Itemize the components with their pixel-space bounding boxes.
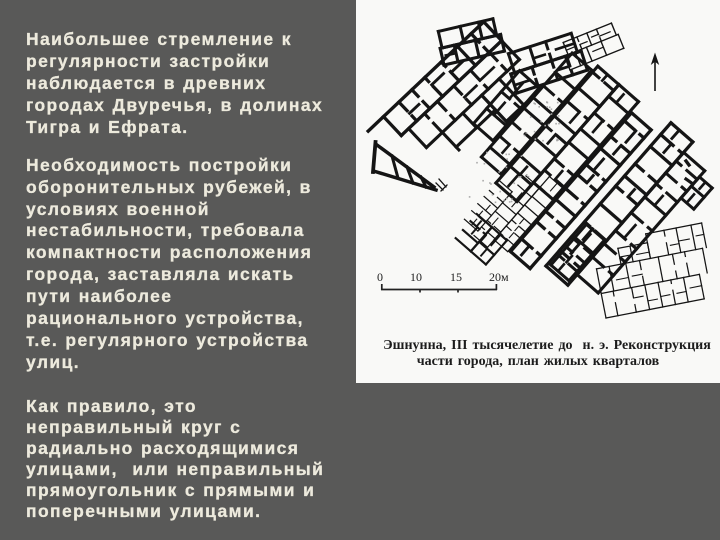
svg-text:15: 15 [450,270,462,284]
svg-text:10: 10 [410,270,422,284]
svg-text:0: 0 [377,270,383,284]
svg-text:20м: 20м [489,270,509,284]
